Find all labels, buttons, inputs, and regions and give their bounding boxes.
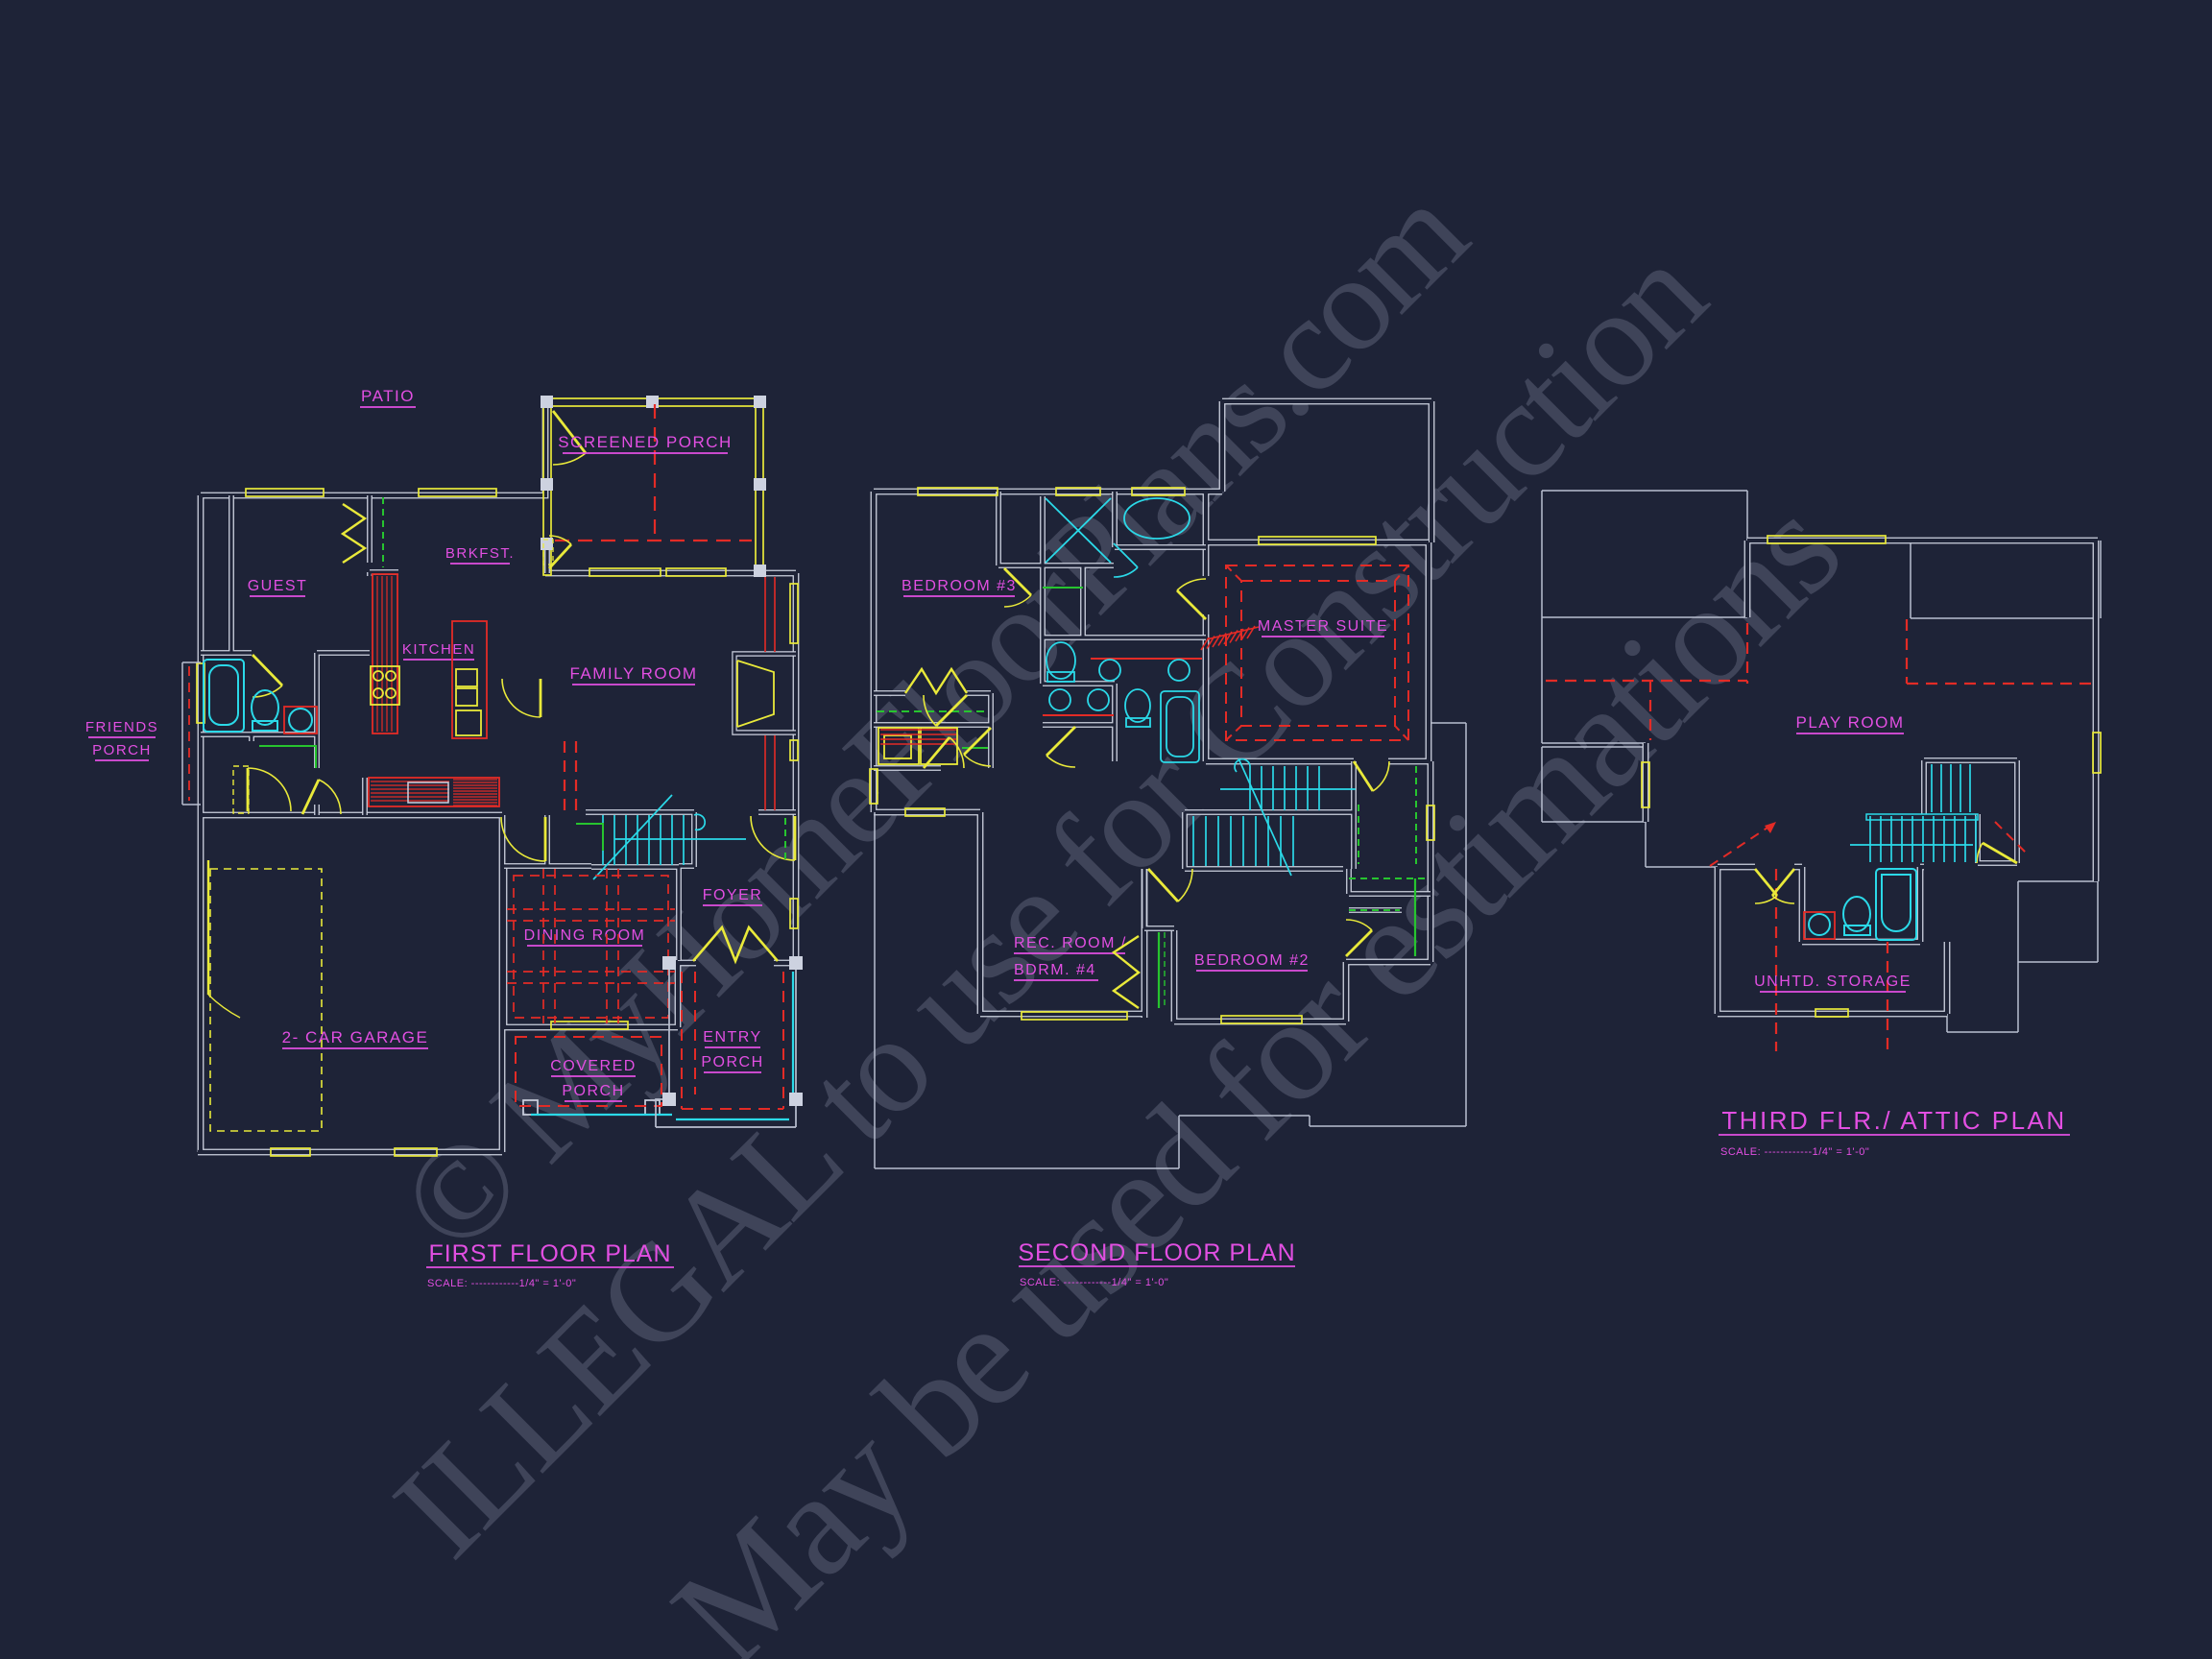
svg-text:REC. ROOM /: REC. ROOM /	[1014, 935, 1127, 951]
svg-text:FOYER: FOYER	[703, 887, 763, 903]
svg-text:BDRM. #4: BDRM. #4	[1014, 962, 1096, 978]
svg-text:SCREENED PORCH: SCREENED PORCH	[558, 433, 733, 451]
svg-text:BEDROOM #3: BEDROOM #3	[902, 578, 1017, 594]
svg-text:FAMILY ROOM: FAMILY ROOM	[569, 664, 697, 683]
svg-text:BEDROOM #2: BEDROOM #2	[1194, 952, 1310, 969]
svg-text:2- CAR GARAGE: 2- CAR GARAGE	[282, 1028, 429, 1046]
svg-text:BRKFST.: BRKFST.	[445, 545, 515, 562]
svg-text:SCALE: ------------1/4" = 1'-0: SCALE: ------------1/4" = 1'-0"	[427, 1278, 576, 1289]
svg-text:GUEST: GUEST	[248, 578, 308, 594]
svg-text:MASTER SUITE: MASTER SUITE	[1258, 618, 1388, 635]
svg-text:PORCH: PORCH	[562, 1083, 624, 1099]
svg-text:PORCH: PORCH	[701, 1054, 763, 1070]
svg-text:UNHTD. STORAGE: UNHTD. STORAGE	[1754, 974, 1911, 990]
svg-text:ENTRY: ENTRY	[703, 1029, 761, 1046]
svg-text:THIRD FLR./ ATTIC PLAN: THIRD FLR./ ATTIC PLAN	[1721, 1106, 2066, 1135]
svg-text:PATIO: PATIO	[361, 387, 415, 405]
svg-text:SCALE: ------------1/4" = 1'-0: SCALE: ------------1/4" = 1'-0"	[1720, 1146, 1869, 1158]
svg-text:PLAY ROOM: PLAY ROOM	[1795, 713, 1904, 732]
svg-text:FIRST FLOOR PLAN: FIRST FLOOR PLAN	[428, 1240, 671, 1267]
svg-text:FRIENDS: FRIENDS	[85, 719, 158, 735]
svg-text:SECOND FLOOR PLAN: SECOND FLOOR PLAN	[1018, 1239, 1295, 1266]
svg-text:COVERED: COVERED	[550, 1058, 637, 1074]
svg-text:PORCH: PORCH	[92, 742, 152, 758]
svg-text:SCALE: ------------1/4" = 1'-0: SCALE: ------------1/4" = 1'-0"	[1020, 1277, 1168, 1288]
svg-text:KITCHEN: KITCHEN	[402, 641, 475, 658]
svg-text:DINING ROOM: DINING ROOM	[524, 927, 646, 944]
